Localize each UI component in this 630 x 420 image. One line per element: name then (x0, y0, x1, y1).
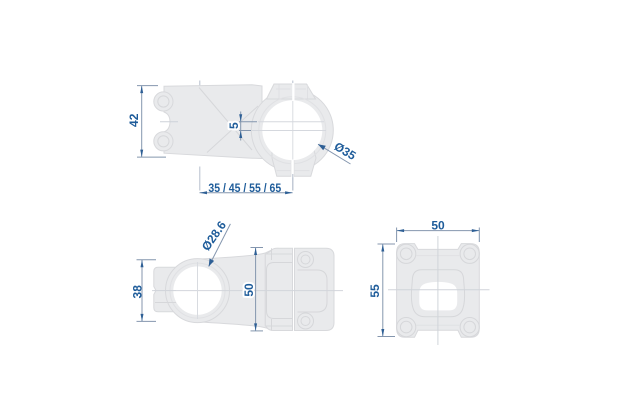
svg-text:38: 38 (131, 285, 145, 299)
svg-text:55: 55 (368, 284, 382, 298)
svg-text:50: 50 (431, 218, 445, 232)
svg-text:42: 42 (127, 113, 141, 127)
svg-text:Ø35: Ø35 (332, 139, 359, 163)
svg-text:50: 50 (242, 283, 256, 297)
svg-text:35 / 45 / 55 / 65: 35 / 45 / 55 / 65 (208, 181, 281, 195)
svg-text:5: 5 (227, 122, 241, 129)
